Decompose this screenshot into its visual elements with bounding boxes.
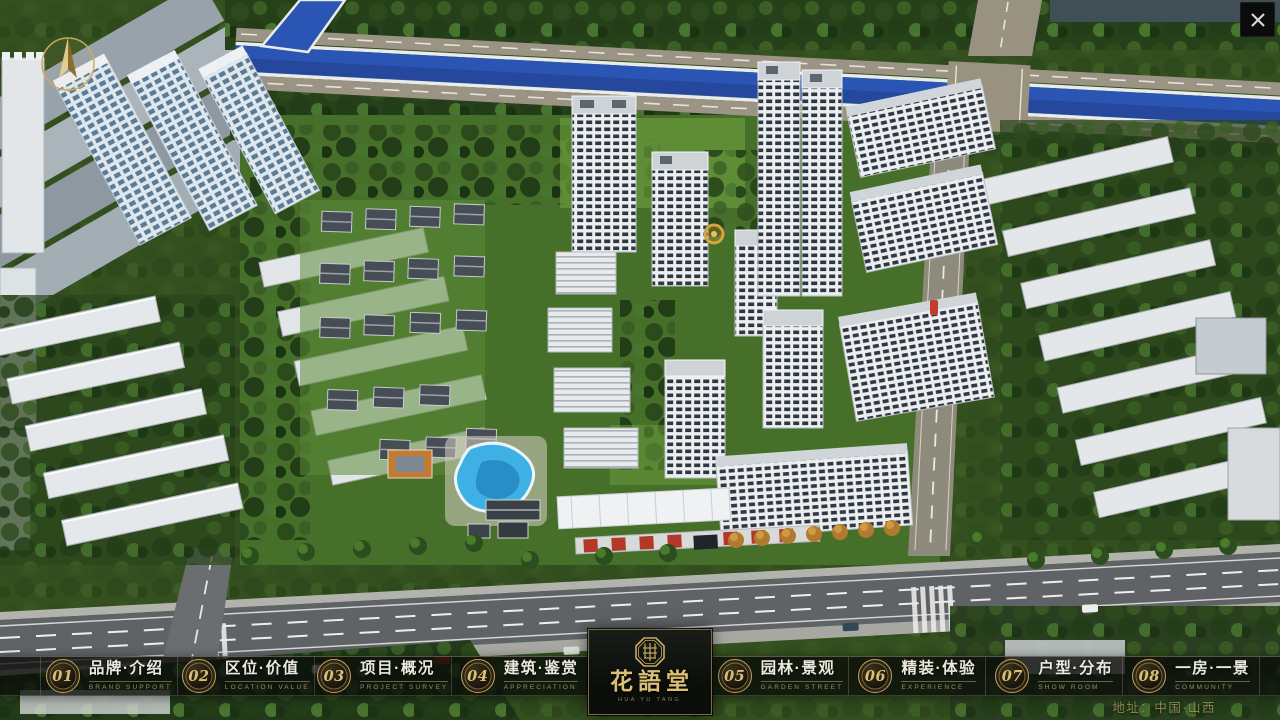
close-icon bbox=[1250, 12, 1266, 28]
nav-number-badge: 03 bbox=[317, 659, 351, 693]
brand-logo-wrap: 花語堂 HUA YU TANG bbox=[588, 657, 712, 695]
brand-seal-icon bbox=[635, 637, 665, 667]
nav-item-number: 02 bbox=[188, 668, 209, 685]
nav-item-number: 07 bbox=[1002, 668, 1023, 685]
nav-item-subtitle: BRAND SUPPORT bbox=[89, 681, 172, 691]
nav-item-interior-experience[interactable]: 06 精装·体验EXPERIENCE bbox=[848, 657, 985, 695]
nav-item-title: 园林·景观 bbox=[761, 661, 836, 677]
nav-item-title: 户型·分布 bbox=[1038, 661, 1113, 677]
bottom-navbar: 01 品牌·介绍BRAND SUPPORT 02 区位·价值LOCATION V… bbox=[0, 656, 1280, 696]
nav-item-number: 08 bbox=[1139, 668, 1160, 685]
nav-item-subtitle: SHOW ROOM bbox=[1038, 681, 1113, 691]
nav-item-project-survey[interactable]: 03 项目·概况PROJECT SURVEY bbox=[314, 657, 451, 695]
nav-item-number: 05 bbox=[724, 668, 745, 685]
nav-item-subtitle: LOCATION VALUE bbox=[225, 681, 310, 691]
project-address: 地址：中国·山西 bbox=[1112, 697, 1216, 716]
brand-logo-panel[interactable]: 花語堂 HUA YU TANG bbox=[588, 629, 712, 715]
nav-item-title: 项目·概况 bbox=[360, 661, 435, 677]
nav-item-subtitle: EXPERIENCE bbox=[901, 681, 976, 691]
brand-logo-title: 花語堂 bbox=[605, 670, 694, 693]
nav-number-badge: 06 bbox=[858, 659, 892, 693]
nav-item-number: 04 bbox=[467, 668, 488, 685]
brand-logo-subtitle: HUA YU TANG bbox=[618, 697, 681, 703]
nav-item-number: 03 bbox=[324, 668, 345, 685]
nav-item-title: 建筑·鉴赏 bbox=[504, 661, 579, 677]
nav-item-subtitle: GARDEN STREET bbox=[761, 681, 844, 691]
nav-item-location-value[interactable]: 02 区位·价值LOCATION VALUE bbox=[177, 657, 314, 695]
nav-item-subtitle: COMMUNITY bbox=[1175, 681, 1250, 691]
compass-icon bbox=[36, 32, 100, 96]
nav-item-number: 01 bbox=[52, 668, 73, 685]
nav-item-subtitle: PROJECT SURVEY bbox=[360, 681, 448, 691]
nav-number-badge: 07 bbox=[995, 659, 1029, 693]
nav-item-subtitle: APPRECIATION bbox=[504, 681, 579, 691]
nav-number-badge: 08 bbox=[1132, 659, 1166, 693]
site-plan-3d-map[interactable] bbox=[0, 0, 1280, 720]
nav-item-title: 品牌·介绍 bbox=[89, 661, 164, 677]
nav-item-title: 精装·体验 bbox=[901, 661, 976, 677]
nav-item-architecture[interactable]: 04 建筑·鉴赏APPRECIATION bbox=[451, 657, 588, 695]
nav-item-garden-landscape[interactable]: 05 园林·景观GARDEN STREET bbox=[712, 657, 849, 695]
nav-number-badge: 04 bbox=[461, 659, 495, 693]
nav-item-floorplan-distribution[interactable]: 07 户型·分布SHOW ROOM bbox=[985, 657, 1122, 695]
nav-item-title: 一房·一景 bbox=[1175, 661, 1250, 677]
nav-number-badge: 01 bbox=[46, 659, 80, 693]
nav-item-one-room-one-view[interactable]: 08 一房·一景COMMUNITY bbox=[1122, 657, 1260, 695]
nav-number-badge: 05 bbox=[718, 659, 752, 693]
nav-item-title: 区位·价值 bbox=[225, 661, 300, 677]
nav-item-number: 06 bbox=[865, 668, 886, 685]
nav-item-brand-intro[interactable]: 01 品牌·介绍BRAND SUPPORT bbox=[40, 657, 177, 695]
nav-number-badge: 02 bbox=[182, 659, 216, 693]
close-button[interactable] bbox=[1240, 2, 1275, 37]
